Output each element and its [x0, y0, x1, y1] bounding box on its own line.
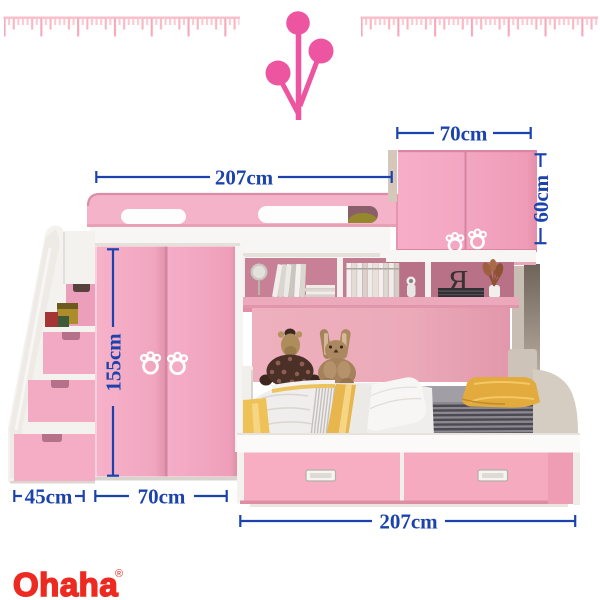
svg-text:60cm: 60cm	[529, 174, 553, 222]
svg-text:®: ®	[115, 568, 123, 580]
svg-text:70cm: 70cm	[138, 485, 186, 509]
svg-text:155cm: 155cm	[102, 333, 126, 392]
svg-text:Ohaha: Ohaha	[13, 566, 118, 600]
svg-text:45cm: 45cm	[25, 485, 73, 509]
svg-text:207cm: 207cm	[215, 166, 274, 190]
svg-text:207cm: 207cm	[379, 510, 438, 534]
svg-text:70cm: 70cm	[440, 122, 488, 146]
